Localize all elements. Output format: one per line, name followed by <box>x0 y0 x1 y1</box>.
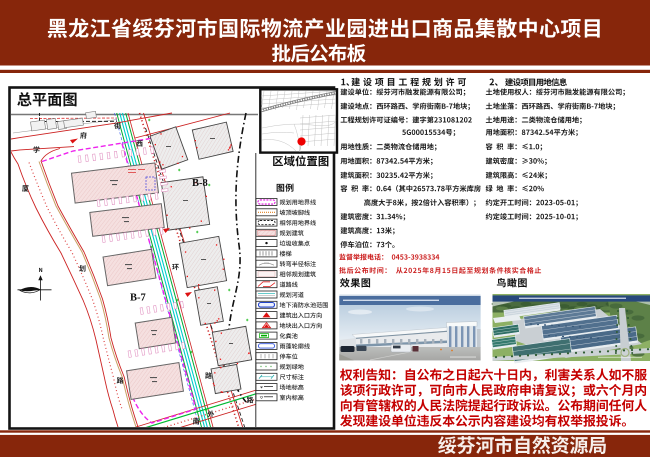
svg-text:B-7: B-7 <box>130 293 146 304</box>
svg-text:B-8: B-8 <box>192 178 208 189</box>
